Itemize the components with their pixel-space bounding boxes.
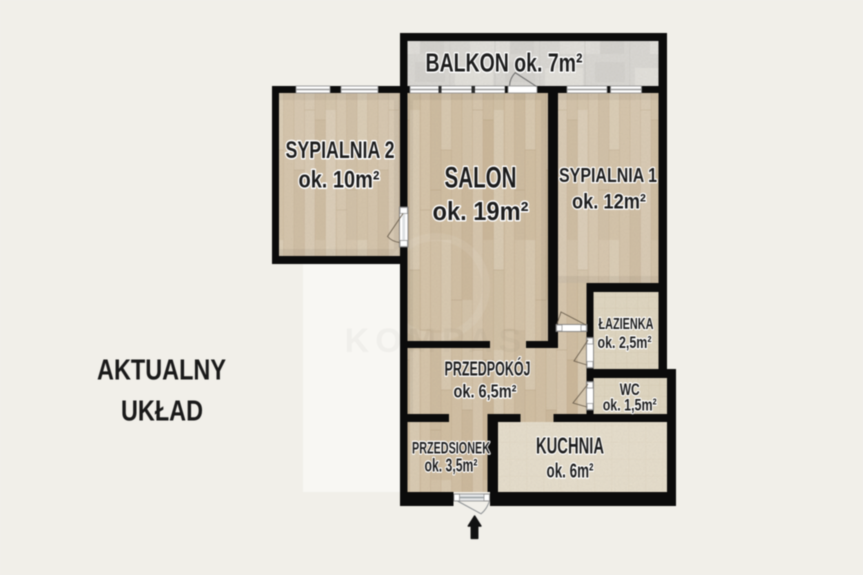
svg-text:BALKON ok. 7m²: BALKON ok. 7m² [426,48,583,78]
svg-text:ok. 12m²: ok. 12m² [572,191,646,214]
svg-text:SYPIALNIA 1: SYPIALNIA 1 [559,165,657,187]
svg-text:ok. 6m²: ok. 6m² [547,461,594,483]
svg-text:ok. 2,5m²: ok. 2,5m² [598,333,652,352]
svg-text:SALON: SALON [445,162,517,195]
svg-text:KUCHNIA: KUCHNIA [536,433,604,459]
svg-text:PRZEDPOKÓJ: PRZEDPOKÓJ [445,357,531,381]
svg-text:UKŁAD: UKŁAD [121,396,203,428]
svg-text:AKTUALNY: AKTUALNY [97,355,226,387]
svg-text:ok. 6,5m²: ok. 6,5m² [454,382,517,402]
svg-text:ok. 10m²: ok. 10m² [299,167,380,194]
svg-text:ok. 1,5m²: ok. 1,5m² [603,396,657,415]
svg-text:ok. 19m²: ok. 19m² [433,196,529,226]
svg-text:ŁAZIENKA: ŁAZIENKA [599,316,654,333]
svg-text:SYPIALNIA 2: SYPIALNIA 2 [286,137,395,164]
svg-text:ok. 3,5m²: ok. 3,5m² [425,456,478,476]
